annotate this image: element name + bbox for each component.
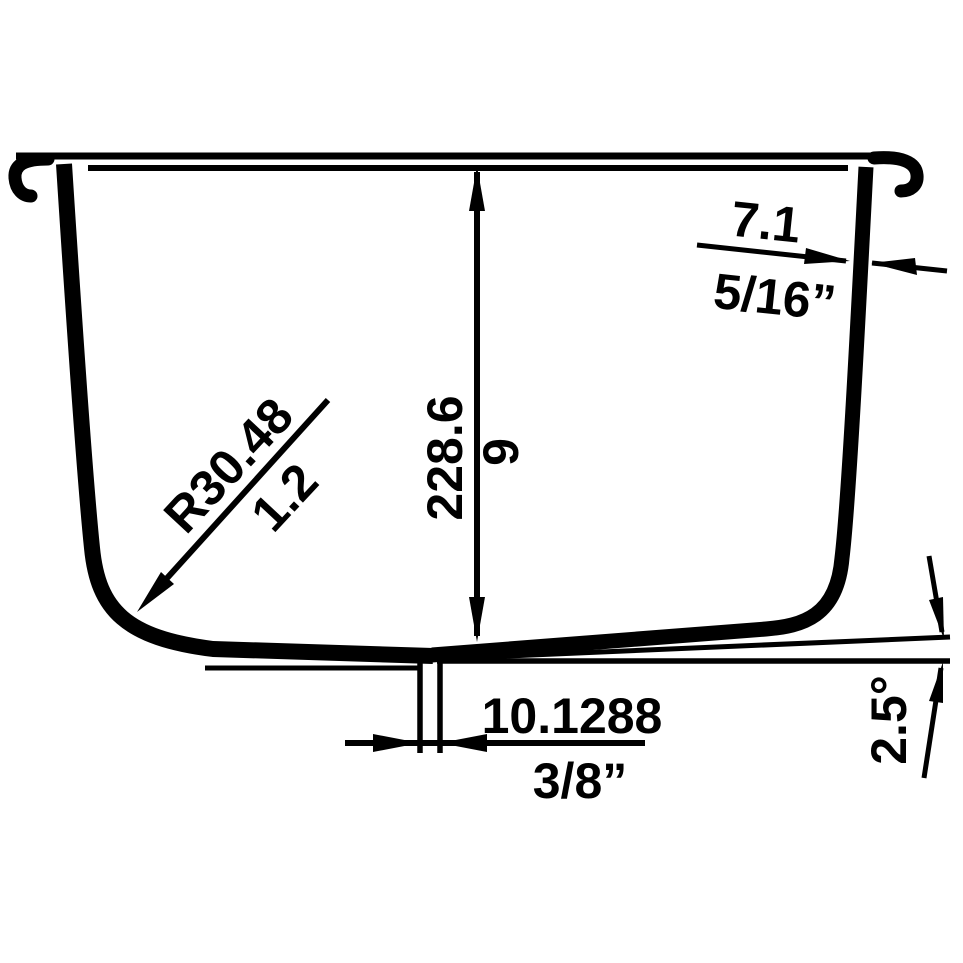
rim-thickness-value-inches: 5/16” — [711, 263, 839, 331]
drain-step-arrow-right — [373, 734, 420, 752]
drain-step-arrow-left — [440, 734, 487, 752]
drain-step-value-mm: 10.1288 — [482, 688, 663, 744]
technical-drawing-page: 228.6 9 7.1 5/16” R30.48 1.2 10.1288 3/8… — [0, 0, 963, 963]
drain-step-value-inches: 3/8” — [533, 753, 628, 809]
sink-right-wall-and-sloped-floor — [432, 167, 866, 655]
depth-arrow-up — [469, 166, 485, 211]
angle-arrow-down — [929, 597, 944, 639]
depth-arrow-down — [469, 597, 485, 642]
rim-thickness-value-mm: 7.1 — [728, 191, 803, 254]
rim-lip-left — [15, 159, 48, 196]
sink-cross-section-drawing: 228.6 9 7.1 5/16” R30.48 1.2 10.1288 3/8… — [0, 0, 963, 963]
slope-angle-value: 2.5° — [861, 675, 917, 765]
angle-arrow-up — [929, 662, 943, 703]
rim-lip-right — [874, 158, 917, 191]
rim-thickness-arrow-left — [871, 258, 917, 275]
depth-value-mm: 228.6 — [417, 395, 473, 520]
depth-value-inches: 9 — [473, 438, 529, 466]
